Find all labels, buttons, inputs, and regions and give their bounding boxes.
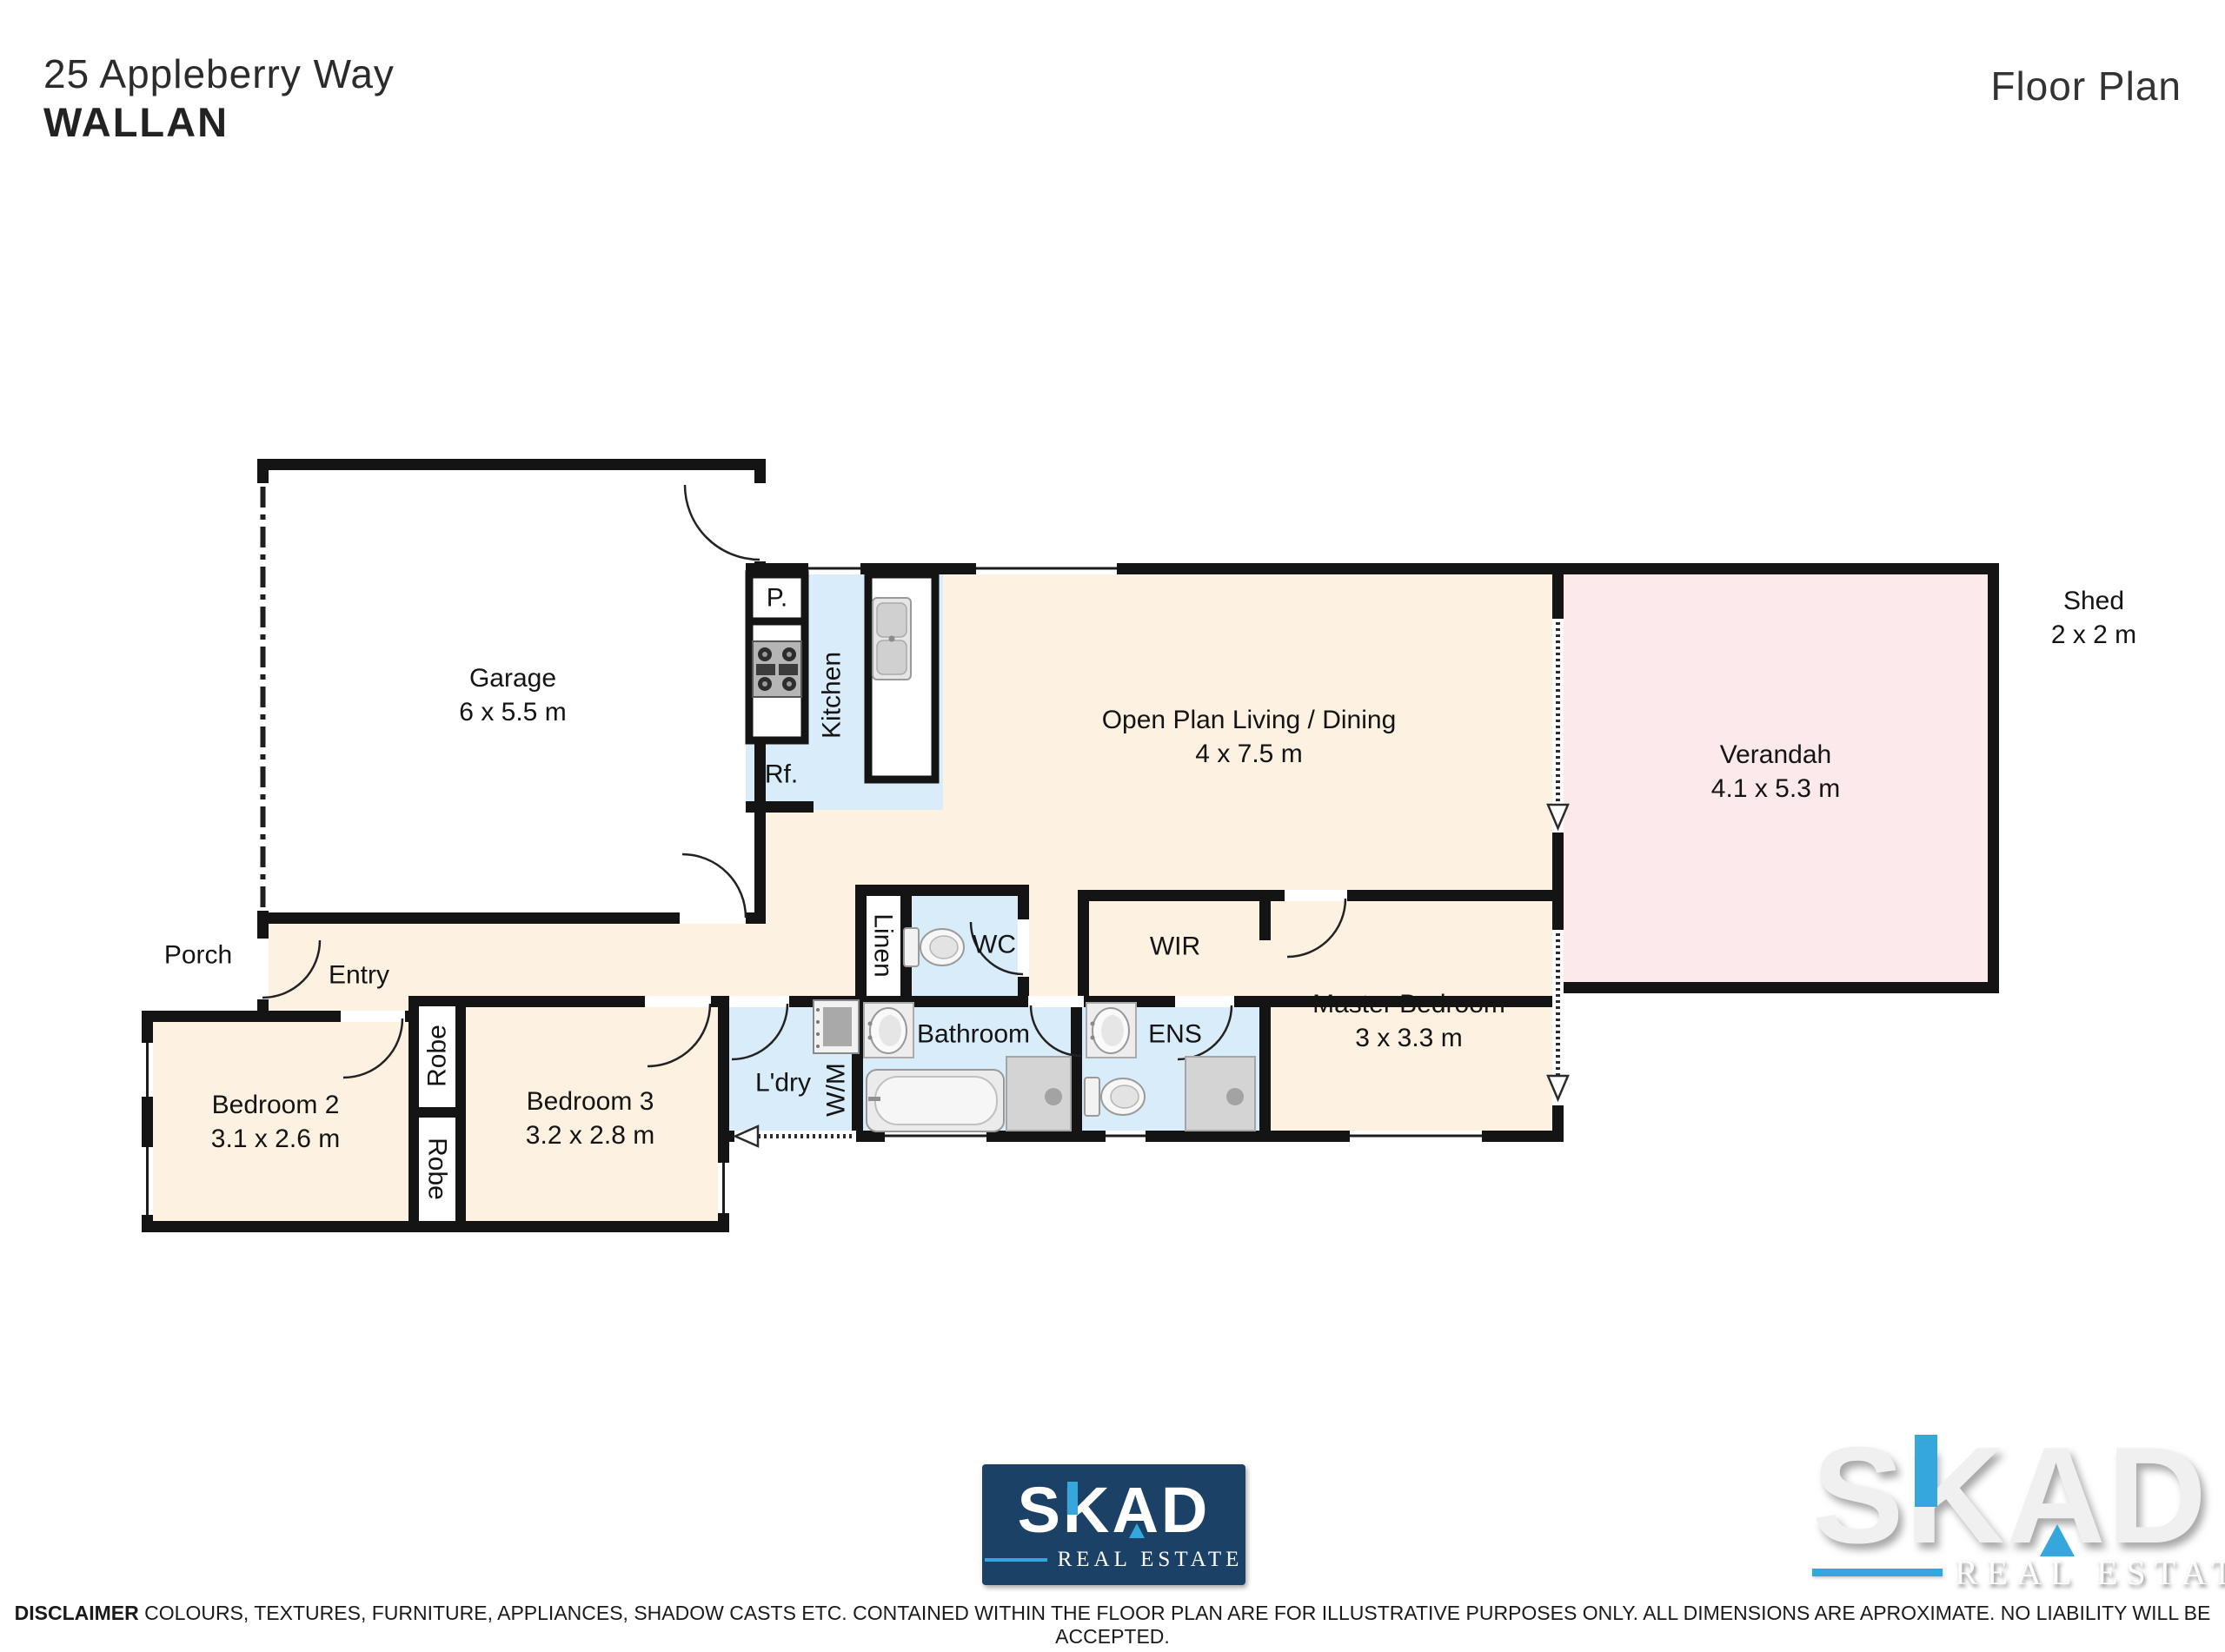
floor-plan-page: 25 Appleberry Way WALLAN Floor Plan <box>0 0 2225 1652</box>
verandah-label: Verandah 4.1 x 5.3 m <box>1711 738 1840 806</box>
porch-label: Porch <box>164 939 232 972</box>
wir-label: WIR <box>1150 930 1200 964</box>
robe-top-label: Robe <box>421 1025 455 1087</box>
ens-toilet-icon <box>1085 1078 1145 1116</box>
island-sink-icon <box>873 598 911 680</box>
pantry-label: P. <box>767 581 787 615</box>
washing-machine-icon <box>814 1000 859 1053</box>
tagline-bar <box>985 1558 1047 1562</box>
bathroom-label: Bathroom <box>917 1018 1030 1052</box>
skad-watermark-wordmark: SKAD <box>1812 1427 2225 1564</box>
floor-plan-drawing <box>0 0 2225 1652</box>
ens-shower-icon <box>1186 1057 1255 1131</box>
fridge-label: Rf. <box>765 758 798 792</box>
entry-label: Entry <box>329 959 389 992</box>
bathroom-shower-icon <box>1006 1057 1071 1131</box>
kitchen-label: Kitchen <box>815 652 849 739</box>
robe-bottom-label: Robe <box>421 1138 455 1200</box>
washer-label: W/M <box>820 1063 853 1117</box>
stove-icon <box>753 641 801 697</box>
ens-label: ENS <box>1148 1018 1202 1052</box>
skad-logo-wordmark: SKAD <box>1018 1478 1211 1543</box>
shed-label: Shed 2 x 2 m <box>2051 584 2136 652</box>
wc-label: WC <box>973 928 1016 962</box>
living-label: Open Plan Living / Dining 4 x 7.5 m <box>1102 703 1397 771</box>
skad-logo-badge: SKAD REAL ESTATE <box>982 1464 1245 1585</box>
ens-sink-icon <box>1086 1003 1136 1058</box>
skad-logo-watermark: SKAD REAL ESTATE <box>1812 1427 2225 1593</box>
bathtub-icon <box>867 1070 1004 1131</box>
linen-label: Linen <box>867 913 900 977</box>
garage-label: Garage 6 x 5.5 m <box>459 661 566 729</box>
wc-toilet-icon <box>904 928 964 966</box>
disclaimer-text: DISCLAIMER COLOURS, TEXTURES, FURNITURE,… <box>0 1602 2225 1649</box>
laundry-label: L'dry <box>755 1066 811 1100</box>
bedroom3-label: Bedroom 3 3.2 x 2.8 m <box>526 1085 654 1152</box>
master-bedroom-label: Master Bedroom 3 x 3.3 m <box>1312 987 1505 1055</box>
skad-logo-tagline: REAL ESTATE <box>1058 1548 1244 1572</box>
bedroom2-label: Bedroom 2 3.1 x 2.6 m <box>211 1088 340 1156</box>
bathroom-sink-icon <box>864 1003 913 1058</box>
